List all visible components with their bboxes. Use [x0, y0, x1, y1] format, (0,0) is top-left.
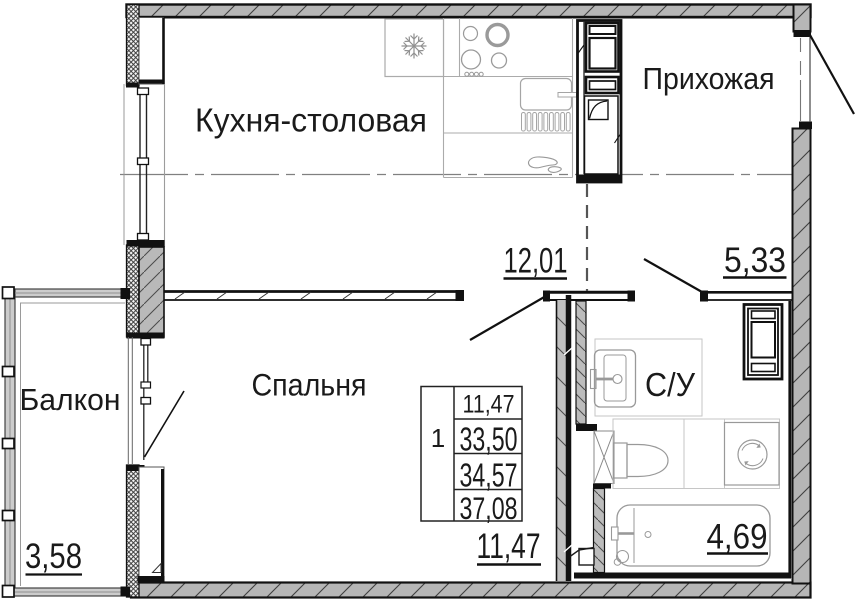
- svg-text:Спальня: Спальня: [252, 367, 367, 403]
- svg-text:5,33: 5,33: [724, 240, 786, 280]
- svg-text:Кухня-столовая: Кухня-столовая: [195, 102, 427, 139]
- svg-text:37,08: 37,08: [460, 490, 518, 526]
- svg-text:33,50: 33,50: [460, 421, 518, 458]
- svg-text:4,69: 4,69: [707, 518, 768, 557]
- svg-text:Балкон: Балкон: [20, 382, 121, 417]
- svg-text:34,57: 34,57: [460, 457, 518, 494]
- svg-text:1: 1: [431, 423, 445, 453]
- svg-text:3,58: 3,58: [25, 537, 82, 576]
- svg-text:11,47: 11,47: [477, 526, 541, 566]
- svg-text:Прихожая: Прихожая: [643, 61, 775, 96]
- svg-text:С/У: С/У: [645, 366, 696, 403]
- svg-text:12,01: 12,01: [504, 241, 568, 281]
- svg-text:11,47: 11,47: [463, 391, 515, 419]
